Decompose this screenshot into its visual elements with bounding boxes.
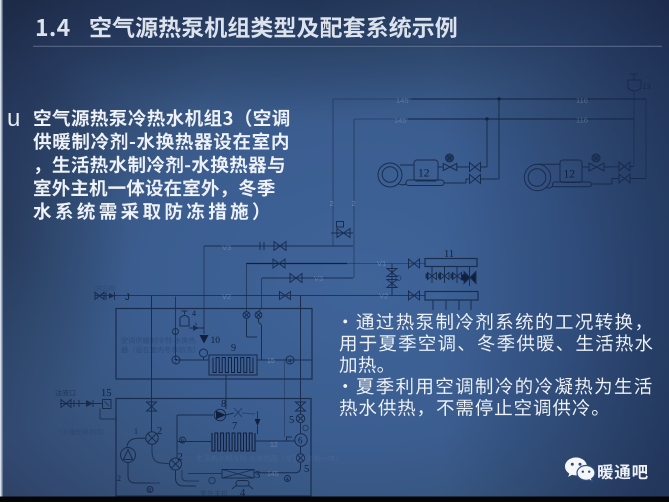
svg-text:8: 8: [221, 399, 226, 410]
svg-text:15: 15: [101, 388, 112, 399]
svg-text:6: 6: [298, 436, 303, 446]
svg-text:3: 3: [255, 470, 260, 481]
svg-text:2: 2: [178, 452, 183, 463]
svg-text:2: 2: [330, 199, 334, 208]
svg-text:8: 8: [148, 488, 151, 494]
svg-text:V2: V2: [379, 292, 388, 301]
svg-text:15: 15: [267, 358, 275, 365]
svg-text:12: 12: [270, 442, 278, 449]
svg-text:145: 145: [396, 96, 409, 105]
svg-text:13: 13: [643, 82, 651, 91]
svg-text:1: 1: [134, 427, 138, 436]
svg-text:4: 4: [192, 309, 196, 318]
svg-text:2: 2: [117, 474, 121, 483]
svg-text:116: 116: [576, 116, 588, 125]
svg-text:116: 116: [576, 96, 588, 105]
svg-text:7: 7: [232, 421, 237, 432]
svg-text:145: 145: [267, 471, 279, 478]
svg-text:5: 5: [304, 464, 309, 475]
svg-text:V1: V1: [377, 259, 386, 268]
svg-text:V3: V3: [314, 274, 323, 283]
svg-text:2: 2: [352, 199, 356, 208]
svg-text:10: 10: [211, 336, 221, 346]
svg-text:145: 145: [394, 116, 407, 125]
svg-text:5: 5: [289, 415, 294, 426]
svg-text:V3: V3: [222, 243, 231, 252]
svg-text:J: J: [125, 292, 130, 303]
svg-text:2: 2: [157, 426, 162, 437]
svg-text:4: 4: [286, 477, 289, 483]
svg-text:V2: V2: [222, 292, 231, 301]
svg-text:12: 12: [564, 169, 576, 181]
svg-text:12: 12: [418, 168, 430, 180]
svg-text:9: 9: [231, 343, 236, 354]
svg-text:u: u: [7, 105, 20, 132]
